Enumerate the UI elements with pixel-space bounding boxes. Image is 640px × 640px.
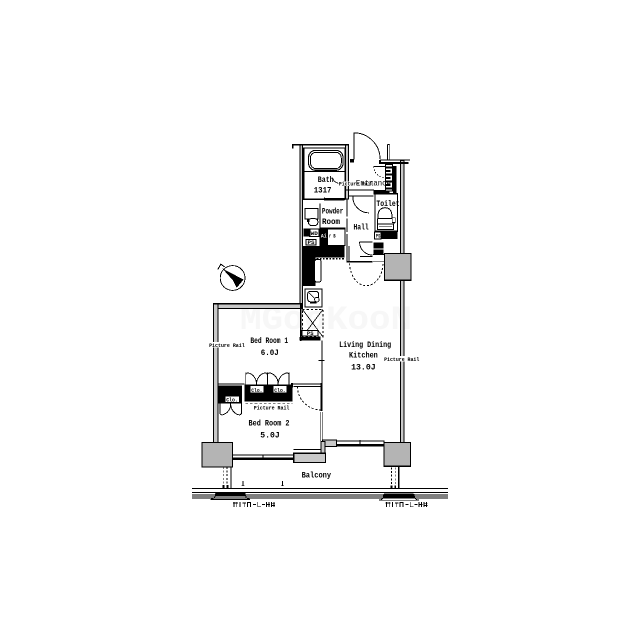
svg-text:5.0J: 5.0J xyxy=(260,432,280,441)
svg-text:1317: 1317 xyxy=(314,187,332,196)
svg-text:Ai: Ai xyxy=(321,233,327,240)
svg-text:Clo.: Clo. xyxy=(251,387,262,394)
svg-text:Clo.: Clo. xyxy=(226,397,238,404)
svg-text:Bed Room 1: Bed Room 1 xyxy=(250,336,288,346)
svg-text:Clo.: Clo. xyxy=(274,387,285,394)
svg-text:Living Dining: Living Dining xyxy=(339,340,391,350)
svg-text:Kitchen: Kitchen xyxy=(349,350,378,360)
svg-text:Picture Rail: Picture Rail xyxy=(209,342,245,349)
svg-text:Powder: Powder xyxy=(322,207,343,217)
svg-text:13.0J: 13.0J xyxy=(351,363,376,372)
svg-text:PS: PS xyxy=(376,233,381,240)
svg-text:Room: Room xyxy=(322,218,340,227)
svg-text:Hall: Hall xyxy=(354,223,369,233)
svg-text:PS: PS xyxy=(307,330,314,337)
svg-text:Toilet: Toilet xyxy=(376,199,399,209)
svg-text:Bed Room 2: Bed Room 2 xyxy=(249,419,290,429)
svg-text:PS: PS xyxy=(308,239,316,246)
svg-text:Picture Rail: Picture Rail xyxy=(254,404,290,411)
svg-text:Picture Rail: Picture Rail xyxy=(384,356,420,363)
svg-text:r B: r B xyxy=(329,233,336,240)
svg-text:Entrance: Entrance xyxy=(356,180,391,189)
svg-text:WD: WD xyxy=(311,230,319,237)
svg-text:Bath: Bath xyxy=(318,175,334,185)
svg-text:6.0J: 6.0J xyxy=(261,349,279,358)
svg-text:Balcony: Balcony xyxy=(302,471,332,481)
